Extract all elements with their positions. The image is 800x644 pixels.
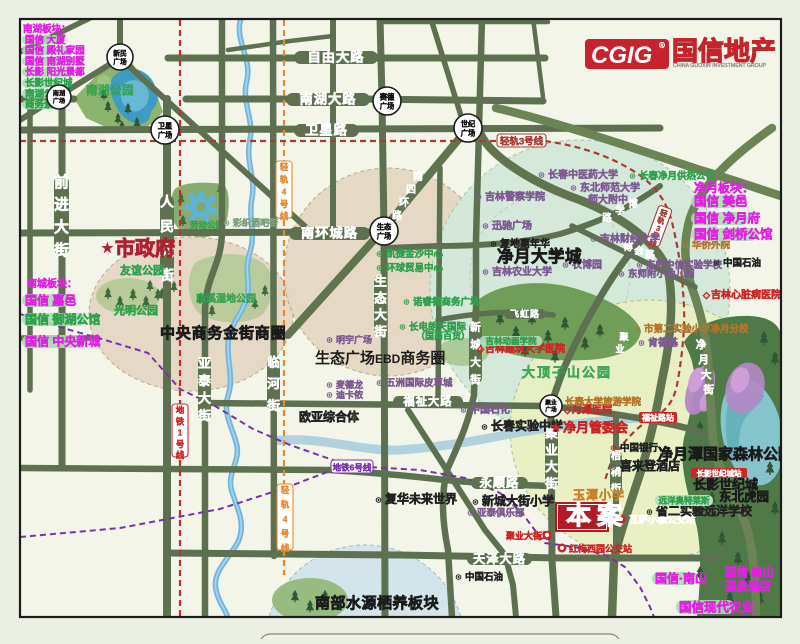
svg-text:国信 大厦: 国信 大厦 xyxy=(25,34,66,46)
svg-text:净月潭国家森林公园: 净月潭国家森林公园 xyxy=(658,445,793,463)
svg-text:净月大学城: 净月大学城 xyxy=(497,246,582,266)
svg-text:南环城路: 南环城路 xyxy=(301,225,358,241)
svg-text:市第二实验小学净月分校: 市第二实验小学净月分校 xyxy=(644,323,749,335)
svg-text:◇: ◇ xyxy=(702,290,711,300)
svg-text:世纪: 世纪 xyxy=(461,119,476,128)
svg-text:南: 南 xyxy=(413,170,423,183)
svg-text:CHINA GUOXIN INVESTMENT GROUP: CHINA GUOXIN INVESTMENT GROUP xyxy=(673,63,767,69)
svg-text:轻轨3号线: 轻轨3号线 xyxy=(500,135,544,147)
svg-text:永顺路: 永顺路 xyxy=(479,475,520,490)
svg-text:诺睿德商务广场: 诺睿德商务广场 xyxy=(413,296,480,308)
svg-text:地铁6号线: 地铁6号线 xyxy=(333,462,372,472)
svg-text:国信 美邑: 国信 美邑 xyxy=(694,194,748,209)
svg-text:光明公园: 光明公园 xyxy=(113,303,158,317)
svg-text:南城板块：: 南城板块： xyxy=(27,277,77,290)
svg-text:大顶子山公园: 大顶子山公园 xyxy=(522,365,612,380)
svg-text:国信 南山: 国信 南山 xyxy=(725,565,774,579)
svg-text:聚: 聚 xyxy=(618,332,629,342)
svg-text:东北师范大学: 东北师范大学 xyxy=(580,181,640,194)
svg-text:飞虹路: 飞虹路 xyxy=(510,308,540,319)
svg-text:中国石油: 中国石油 xyxy=(465,571,503,583)
svg-text:新城大街小学: 新城大街小学 xyxy=(482,493,554,508)
svg-text:广场: 广场 xyxy=(377,231,392,240)
svg-text:广场: 广场 xyxy=(461,128,476,137)
svg-text:南湖: 南湖 xyxy=(53,90,65,98)
svg-text:国信 剑桥公馆: 国信 剑桥公馆 xyxy=(694,227,772,242)
svg-text:会: 会 xyxy=(634,245,644,257)
svg-text:卫星路: 卫星路 xyxy=(305,122,348,138)
svg-text:福祉路站: 福祉路站 xyxy=(641,413,674,423)
svg-text:迪卡侬: 迪卡侬 xyxy=(336,389,364,400)
svg-text:业: 业 xyxy=(615,343,624,354)
svg-text:彩织酒吧街: 彩织酒吧街 xyxy=(232,217,278,228)
svg-text:广场: 广场 xyxy=(545,406,557,414)
svg-text:中国石油: 中国石油 xyxy=(723,257,761,269)
svg-text:国信 殿礼家园: 国信 殿礼家园 xyxy=(25,45,85,57)
svg-text:南部水源栖养板块: 南部水源栖养板块 xyxy=(315,594,440,612)
svg-text:广场: 广场 xyxy=(113,57,127,66)
svg-text:聚业: 聚业 xyxy=(544,399,557,407)
svg-text:国信 净月府: 国信 净月府 xyxy=(694,211,760,226)
svg-text:市政府: 市政府 xyxy=(115,236,175,260)
svg-text:净月板块：: 净月板块： xyxy=(694,180,754,195)
svg-text:红梅西园公交站: 红梅西园公交站 xyxy=(569,543,632,554)
svg-text:长影世纪城站: 长影世纪城站 xyxy=(697,468,742,478)
svg-text:广场: 广场 xyxy=(158,130,173,139)
svg-text:国信 中央新城: 国信 中央新城 xyxy=(25,334,100,349)
svg-text:街: 街 xyxy=(703,383,715,396)
svg-text:南湖板块：: 南湖板块： xyxy=(23,23,71,35)
svg-text:国信·南山: 国信·南山 xyxy=(655,571,707,586)
svg-text:月: 月 xyxy=(697,354,709,366)
svg-text:国信 御湖公馆: 国信 御湖公馆 xyxy=(25,312,100,327)
svg-text:迅驰广场: 迅驰广场 xyxy=(492,219,532,232)
svg-text:麦德龙: 麦德龙 xyxy=(336,379,363,390)
svg-text:赛德: 赛德 xyxy=(379,92,395,101)
svg-text:中国石化: 中国石化 xyxy=(470,403,510,416)
svg-text:生态广场EBD商务圈: 生态广场EBD商务圈 xyxy=(315,349,445,367)
svg-text:天泽大路: 天泽大路 xyxy=(473,551,526,566)
svg-text:®: ® xyxy=(659,41,665,50)
svg-text:中央商务金街商圈: 中央商务金街商圈 xyxy=(160,324,286,342)
svg-text:★: ★ xyxy=(102,241,113,255)
svg-text:学: 学 xyxy=(615,205,625,217)
svg-text:博: 博 xyxy=(628,198,638,210)
svg-text:CGIG: CGIG xyxy=(591,42,652,69)
svg-text:凯捷金沙中心: 凯捷金沙中心 xyxy=(386,248,444,260)
svg-text:国信现代农业: 国信现代农业 xyxy=(679,599,755,614)
svg-text:聚业大街: 聚业大街 xyxy=(544,425,558,491)
svg-text:新民: 新民 xyxy=(113,48,127,57)
svg-text:长春大学旅游学院: 长春大学旅游学院 xyxy=(565,396,642,408)
svg-text:吉林动画学院: 吉林动画学院 xyxy=(485,336,537,346)
svg-text:生态: 生态 xyxy=(377,222,392,231)
svg-text:净: 净 xyxy=(696,338,707,351)
svg-text:卫星: 卫星 xyxy=(158,121,173,130)
svg-text:长影 阳光景都: 长影 阳光景都 xyxy=(25,66,85,78)
svg-text:远洋奥特莱斯: 远洋奥特莱斯 xyxy=(658,496,710,506)
svg-text:环: 环 xyxy=(399,197,409,209)
svg-text:吉林警察学院: 吉林警察学院 xyxy=(485,190,545,203)
svg-text:友谊公园: 友谊公园 xyxy=(120,263,164,277)
svg-text:福祉大路: 福祉大路 xyxy=(403,394,453,408)
svg-text:欧亚综合体: 欧亚综合体 xyxy=(299,409,360,424)
svg-text:吉林财经大学: 吉林财经大学 xyxy=(600,232,660,245)
svg-text:临河街: 临河街 xyxy=(266,354,280,413)
svg-text:四: 四 xyxy=(406,184,416,196)
svg-text:长春中医药大学: 长春中医药大学 xyxy=(548,168,618,181)
svg-text:东北虎园: 东北虎园 xyxy=(719,489,769,504)
svg-text:五洲国际皮草城: 五洲国际皮草城 xyxy=(386,377,453,389)
svg-text:国信地产: 国信地产 xyxy=(672,36,776,66)
svg-text:复华未来世界: 复华未来世界 xyxy=(384,491,457,506)
svg-text:温泉酒店: 温泉酒店 xyxy=(725,579,771,593)
svg-text:南湖大路: 南湖大路 xyxy=(299,91,356,107)
svg-text:肯德基: 肯德基 xyxy=(648,336,679,349)
svg-text:国信 南湖别墅: 国信 南湖别墅 xyxy=(25,55,85,67)
svg-text:吉林农业大学: 吉林农业大学 xyxy=(492,265,552,278)
svg-text:明宇广场: 明宇广场 xyxy=(336,334,372,345)
svg-text:生态大街: 生态大街 xyxy=(373,273,387,339)
svg-text:南湖公园: 南湖公园 xyxy=(86,83,134,97)
svg-text:国信 嘉邑: 国信 嘉邑 xyxy=(25,293,76,308)
svg-text:广场: 广场 xyxy=(53,97,65,105)
svg-text:广场: 广场 xyxy=(380,101,395,110)
svg-text:师大附中: 师大附中 xyxy=(588,193,628,206)
svg-text:南溪湿地公园: 南溪湿地公园 xyxy=(196,292,256,305)
svg-text:大: 大 xyxy=(701,368,712,381)
svg-text:亚泰俱乐部: 亚泰俱乐部 xyxy=(477,507,525,519)
svg-text:路: 路 xyxy=(602,212,612,224)
svg-text:东师附小幼儿园: 东师附小幼儿园 xyxy=(628,268,695,280)
svg-text:★: ★ xyxy=(551,422,561,434)
svg-text:环球贸易中心: 环球贸易中心 xyxy=(386,262,444,274)
svg-text:中国银行: 中国银行 xyxy=(620,442,659,454)
svg-text:玉潭小学: 玉潭小学 xyxy=(573,487,625,502)
svg-text:吉林心脏病医院: 吉林心脏病医院 xyxy=(711,288,781,301)
svg-text:（国商百货）: （国商百货） xyxy=(416,330,470,341)
svg-text:净月管委会: 净月管委会 xyxy=(563,420,629,435)
svg-text:自由大路: 自由大路 xyxy=(307,49,364,65)
